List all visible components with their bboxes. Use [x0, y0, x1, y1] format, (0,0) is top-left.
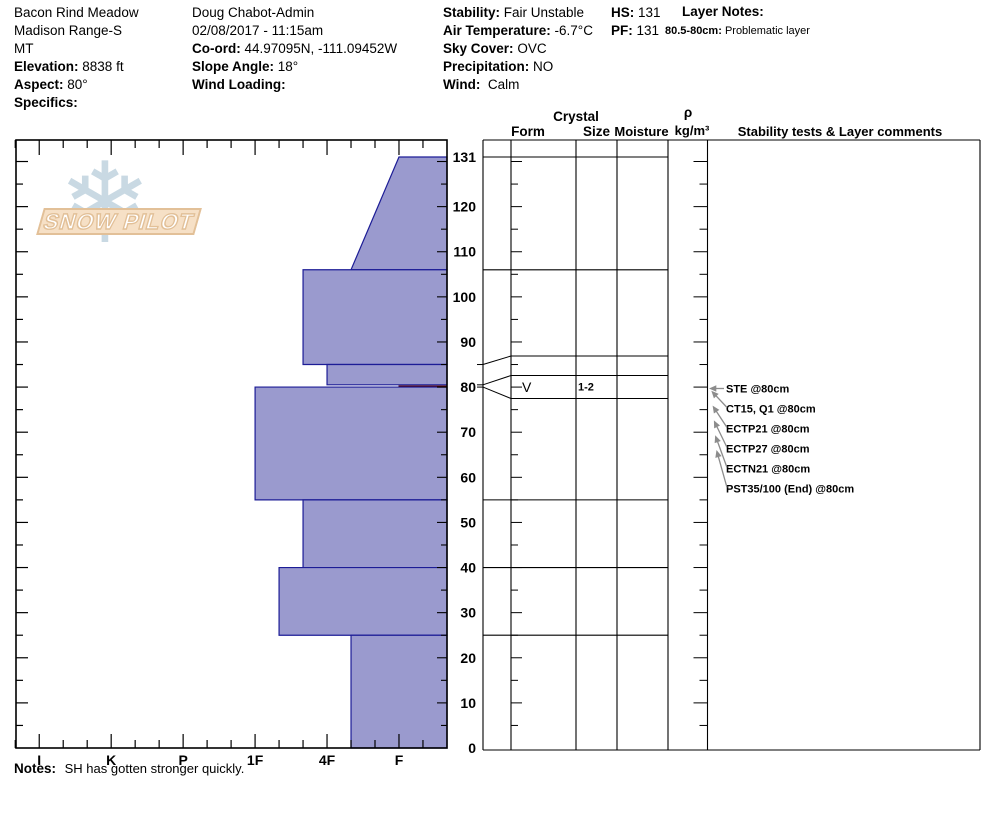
depth-label: 40 [460, 560, 476, 576]
snow-layer-bar [303, 270, 447, 365]
depth-label: 10 [460, 695, 476, 711]
depth-label: 0 [468, 740, 476, 756]
hardness-axis-label: F [395, 752, 404, 768]
snow-layer-bar [351, 635, 447, 748]
depth-label: 30 [460, 605, 476, 621]
depth-label: 70 [460, 424, 476, 440]
row-connector [483, 376, 511, 385]
snow-layer-bar [279, 568, 447, 636]
snow-layer-bar [327, 365, 447, 385]
hardness-axis-label: K [106, 752, 116, 768]
depth-label: 110 [453, 244, 476, 260]
stability-test-label: ECTP27 @80cm [726, 444, 810, 456]
depth-label: 90 [460, 334, 476, 350]
hardness-axis-label: 1F [247, 752, 264, 768]
grain-size-value: 1-2 [578, 382, 594, 394]
depth-label: 50 [460, 514, 476, 530]
depth-label: 100 [453, 289, 477, 305]
stability-test-label: ECTN21 @80cm [726, 464, 810, 476]
row-connector [483, 387, 511, 398]
hardness-axis-label: 4F [319, 752, 336, 768]
hardness-axis-label: P [178, 752, 187, 768]
stability-test-arrowhead [715, 435, 721, 443]
stability-test-label: PST35/100 (End) @80cm [726, 484, 854, 496]
stability-test-label: CT15, Q1 @80cm [726, 404, 816, 416]
grain-form-symbol: V [522, 379, 532, 395]
depth-label: 131 [453, 149, 477, 165]
depth-label: 80 [460, 379, 476, 395]
snow-profile-chart: IKP1F4FF1311201101009080706050403020100V… [0, 0, 994, 840]
hardness-axis-label: I [37, 752, 41, 768]
stability-test-label: STE @80cm [726, 384, 790, 396]
depth-label: 20 [460, 650, 476, 666]
snow-layer-bar [351, 157, 447, 270]
stability-test-arrowhead [713, 406, 720, 414]
stability-test-arrowhead [709, 385, 716, 392]
row-connector [483, 356, 511, 365]
depth-label: 120 [453, 199, 477, 215]
snowpilot-report: ❄ SNOW PILOT IKP1F4FF1311201101009080706… [0, 0, 994, 840]
stability-test-label: ECTP21 @80cm [726, 424, 810, 436]
depth-label: 60 [460, 469, 476, 485]
snow-layer-bar [255, 387, 447, 500]
snow-layer-bar [303, 500, 447, 568]
